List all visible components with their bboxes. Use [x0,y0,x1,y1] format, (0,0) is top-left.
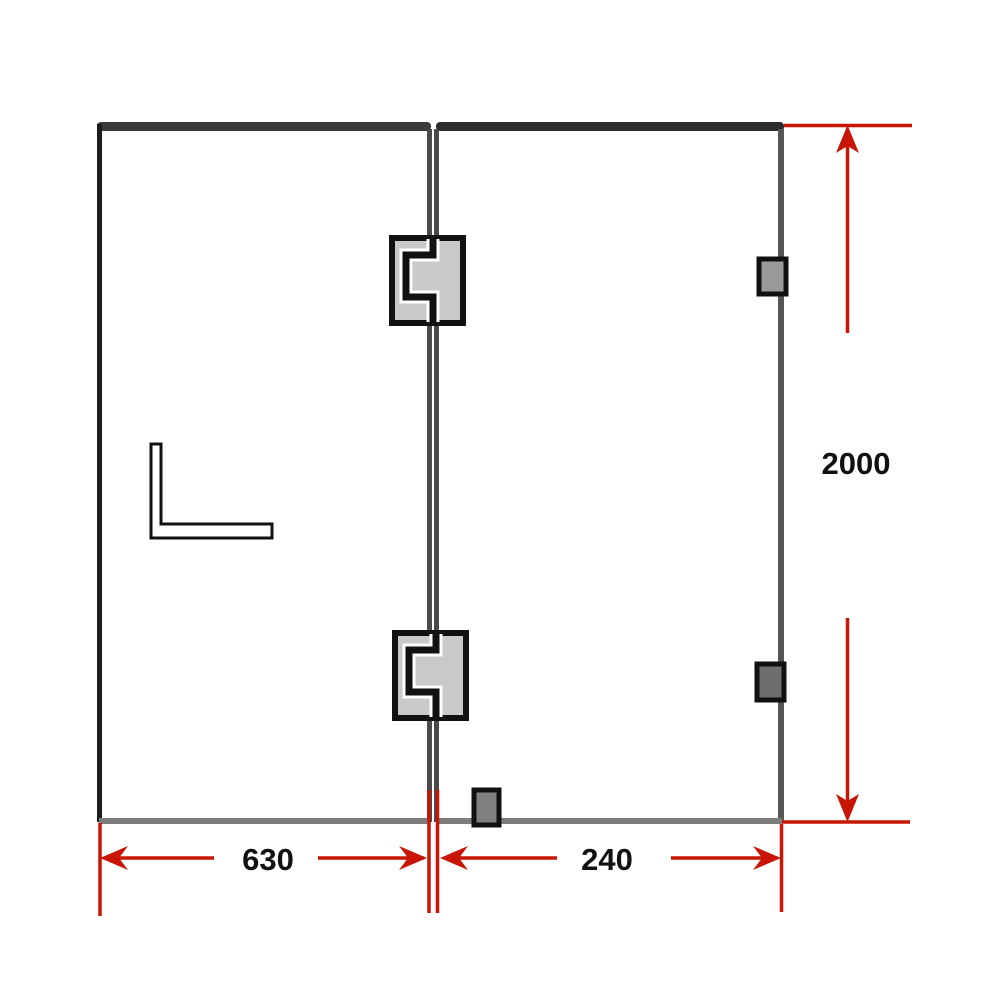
hinge-bottom [395,633,466,718]
hinge-top [392,238,463,323]
shower-screen-diagram-page: 2000 630 240 [0,0,1000,1000]
right-panel-right-edge [778,129,784,823]
left-panel-left-edge [97,124,102,822]
wall-clip-bottom [757,664,784,700]
shower-screen-diagram: 2000 630 240 [0,0,1000,1000]
dim-label-left-width: 630 [242,842,294,877]
wall-clip-top [759,259,786,294]
dim-label-right-width: 240 [581,842,633,877]
left-glass-panel [97,122,432,824]
right-panel-top-rail [436,122,784,131]
dim-label-height: 2000 [822,446,891,481]
left-panel-top-rail [97,122,431,131]
left-panel-bottom-edge [99,818,430,824]
right-glass-panel [434,122,784,824]
corner-bracket [151,444,272,538]
dimension-right-width: 240 [440,824,782,912]
dimension-height: 2000 [782,125,912,822]
floor-clip [474,790,499,825]
dimension-left-width: 630 [100,790,438,916]
